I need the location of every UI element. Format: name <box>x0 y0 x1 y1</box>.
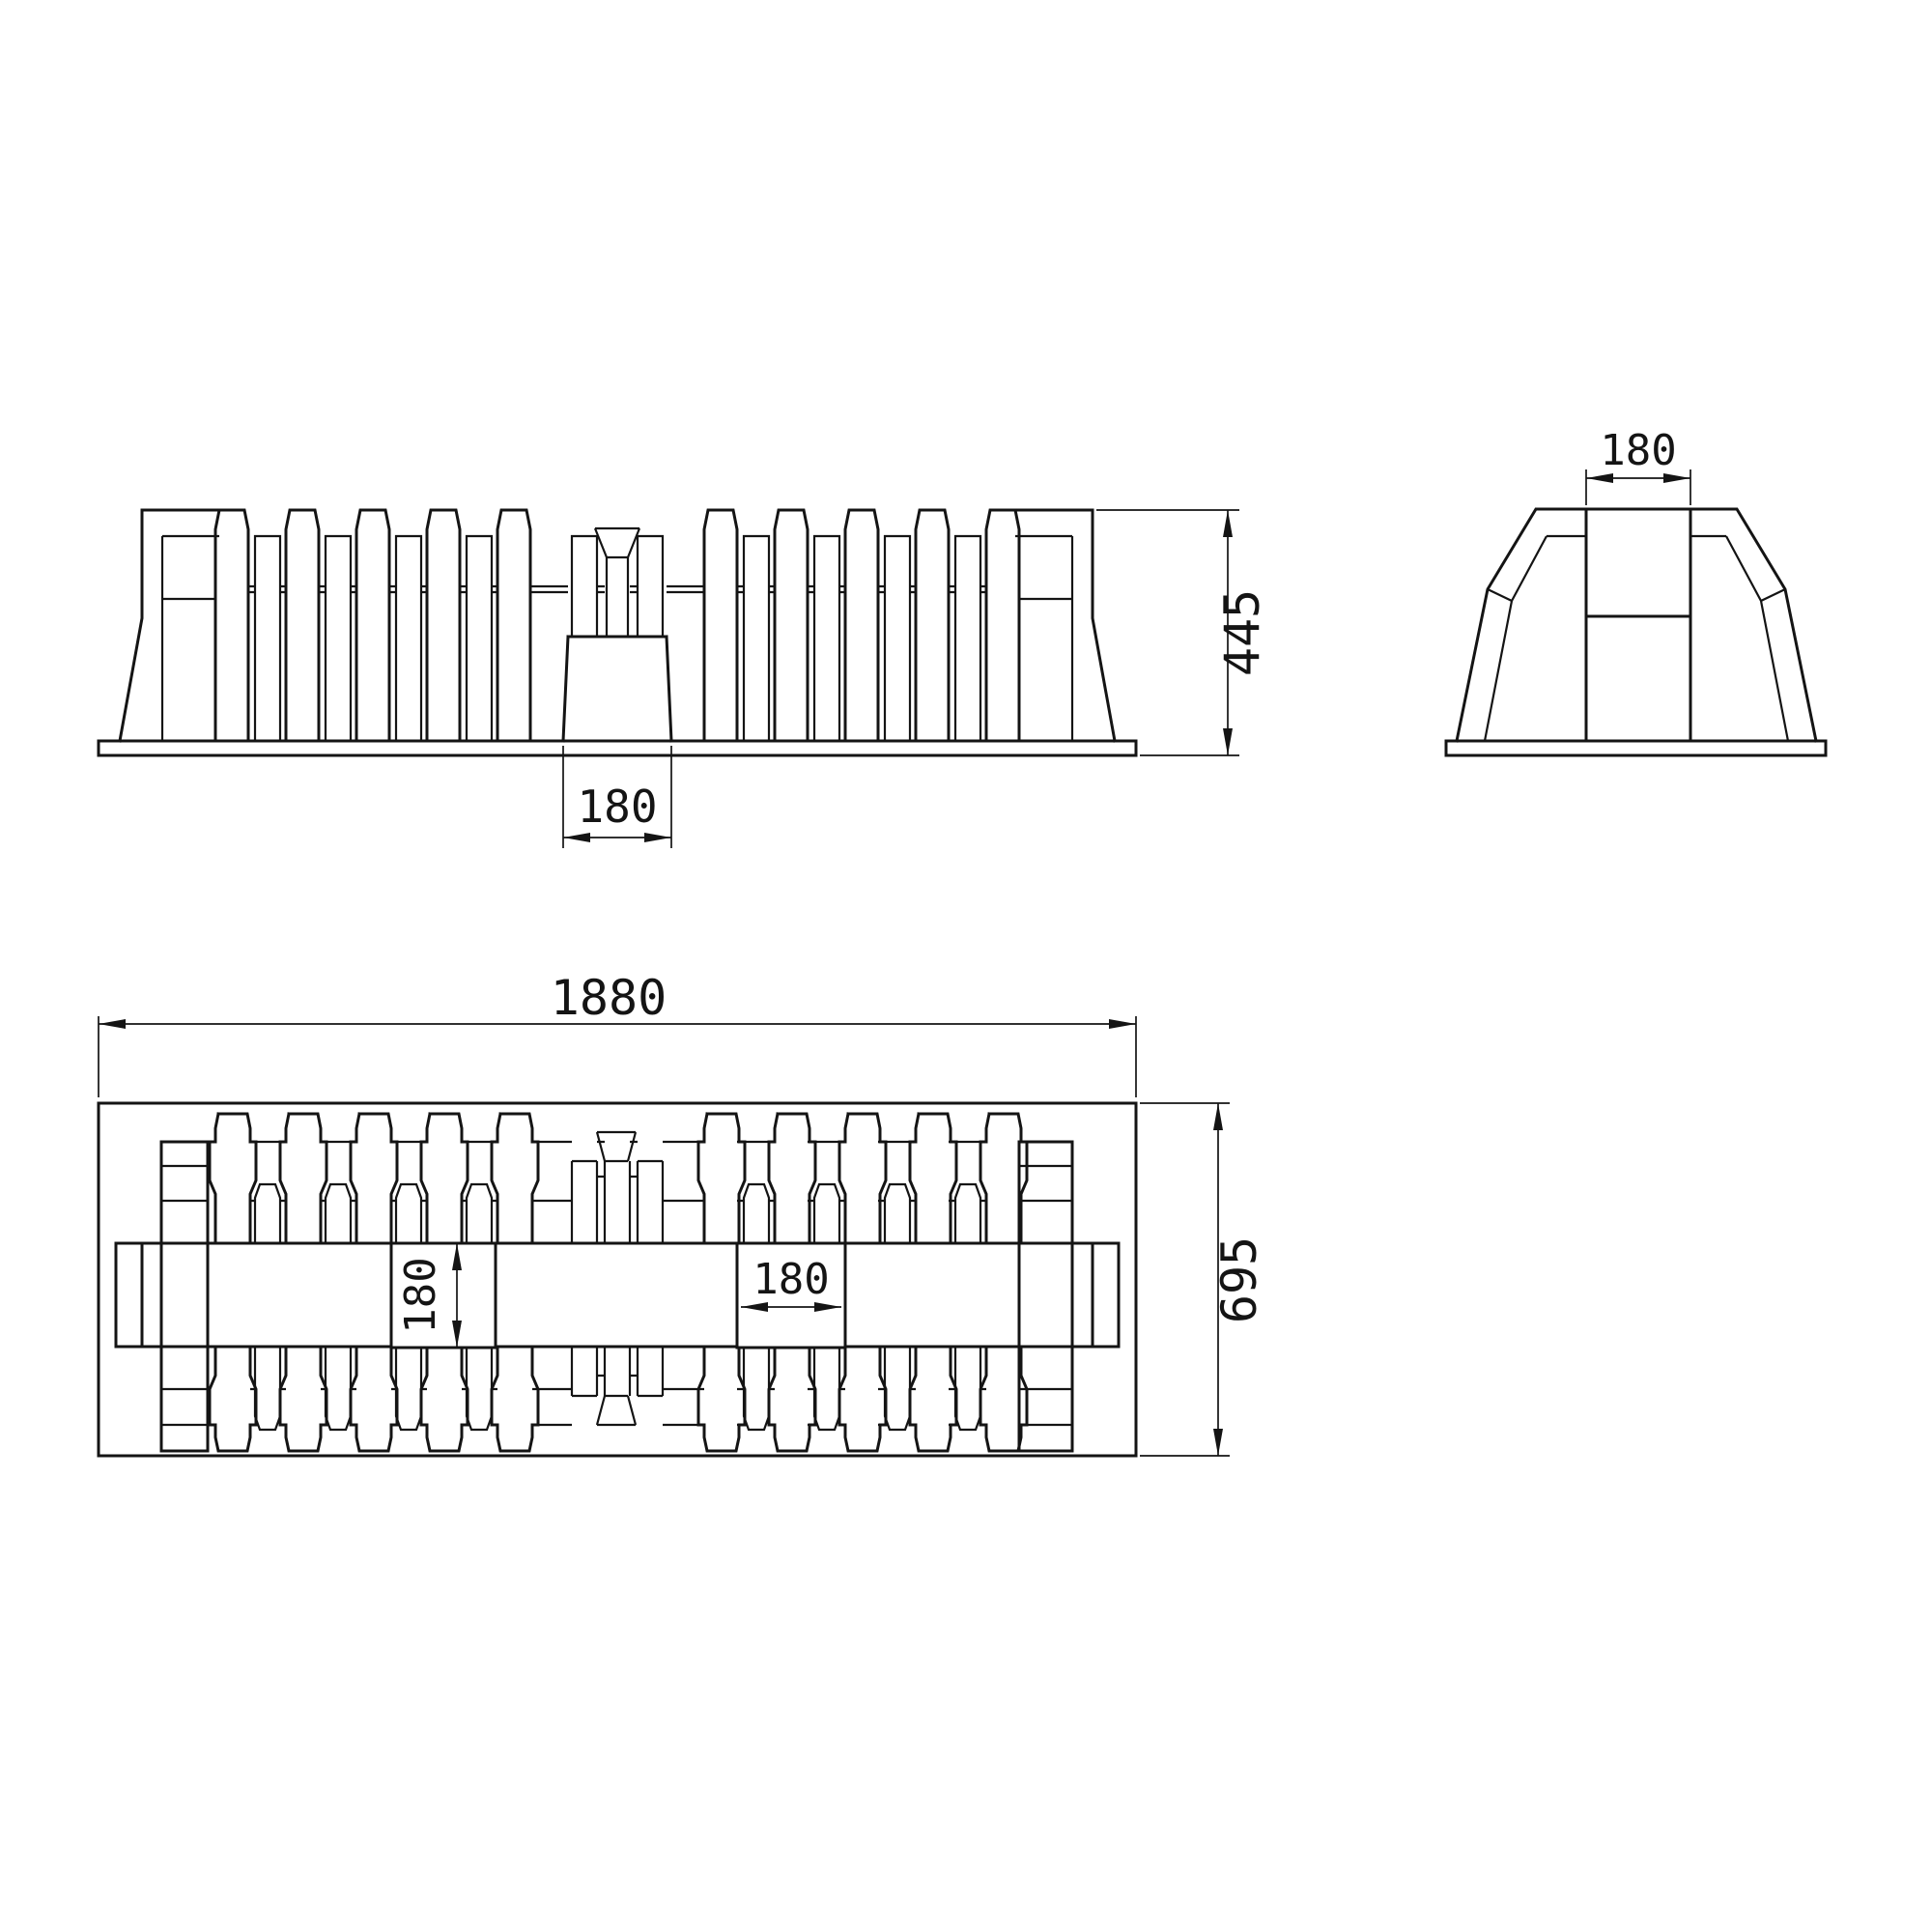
drawing-sheet: 180 445 180 <box>0 0 1931 1932</box>
plan-depth-dim-label: 695 <box>1211 1236 1267 1323</box>
plan-dim-slot: 180 <box>737 1243 845 1348</box>
front-slot-dim-label: 180 <box>577 781 657 833</box>
side-slot-dim-label: 180 <box>1600 426 1676 475</box>
plan-slot-dim-label: 180 <box>753 1255 829 1304</box>
plan-spine-dim-label: 180 <box>396 1257 445 1333</box>
plan-dim-spine: 180 <box>391 1243 496 1348</box>
sheet-background <box>0 0 1931 1932</box>
plan-width-dim-label: 1880 <box>551 970 667 1026</box>
drawing-canvas: 180 445 180 <box>0 0 1931 1932</box>
front-height-dim-label: 445 <box>1214 589 1270 676</box>
